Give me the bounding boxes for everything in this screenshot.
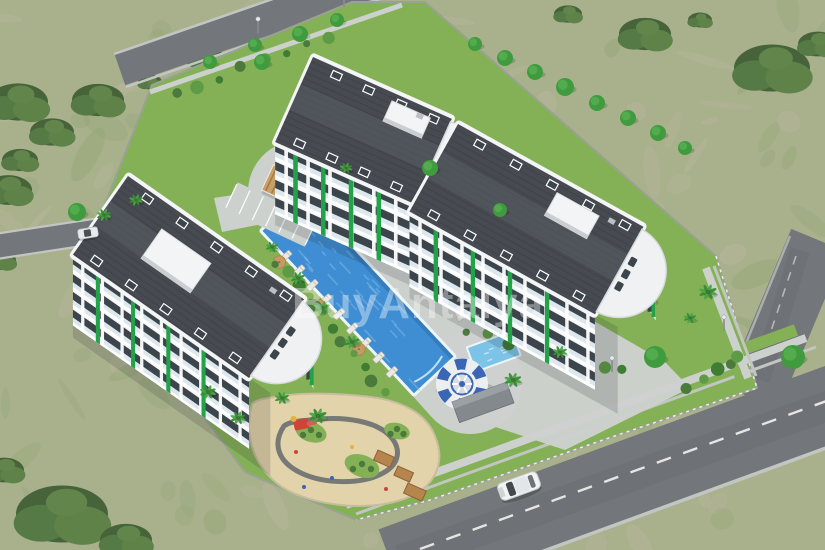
aerial-render: BuyAntalya	[0, 0, 825, 550]
scene-canvas	[0, 0, 825, 550]
